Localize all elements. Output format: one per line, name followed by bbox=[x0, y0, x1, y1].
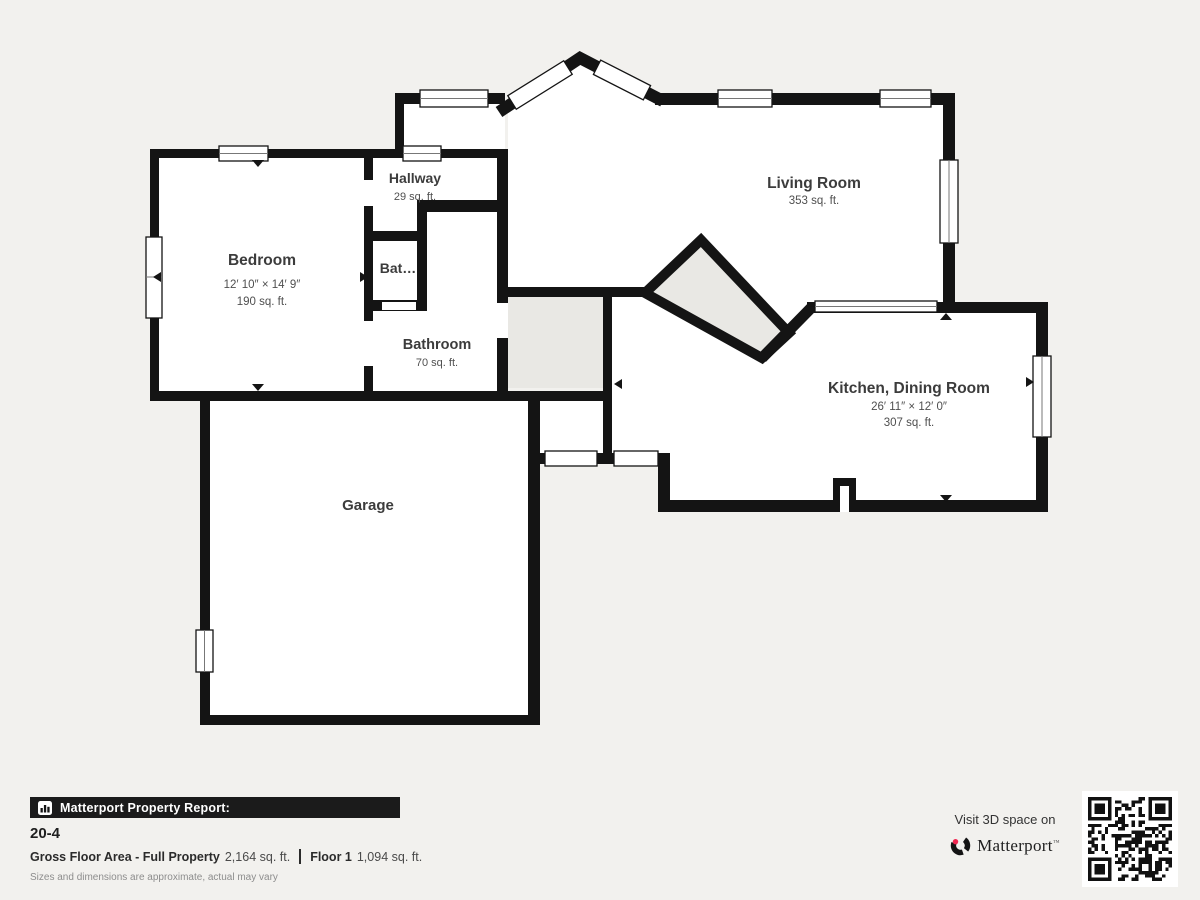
room-area-bedroom: 190 sq. ft. bbox=[237, 296, 288, 308]
qr-code bbox=[1088, 797, 1172, 881]
report-chart-icon bbox=[38, 801, 52, 815]
room-area-hallway: 29 sq. ft. bbox=[394, 191, 436, 203]
gross-area-label: Gross Floor Area - Full Property bbox=[30, 850, 220, 864]
matterport-wordmark: Matterport™ bbox=[977, 836, 1060, 856]
room-area-bathroom: 70 sq. ft. bbox=[416, 357, 458, 369]
disclaimer-text: Sizes and dimensions are approximate, ac… bbox=[30, 872, 278, 883]
area-divider bbox=[299, 849, 301, 864]
floor-plan: Bedroom 12′ 10″ × 14′ 9″ 190 sq. ft. Hal… bbox=[0, 0, 1200, 790]
report-title: Matterport Property Report: bbox=[60, 801, 230, 815]
floor1-label: Floor 1 bbox=[310, 850, 352, 864]
floor-area-line: Gross Floor Area - Full Property 2,164 s… bbox=[30, 849, 422, 864]
room-dims-kitchen: 26′ 11″ × 12′ 0″ bbox=[871, 401, 947, 413]
visit-3d-block: Visit 3D space on Matterport™ bbox=[930, 812, 1080, 856]
visit-3d-text: Visit 3D space on bbox=[930, 812, 1080, 827]
qr-code-panel bbox=[1082, 791, 1178, 887]
report-footer: Matterport Property Report: 20-4 Gross F… bbox=[0, 790, 1200, 900]
matterport-logo-icon bbox=[950, 835, 971, 856]
room-area-kitchen: 307 sq. ft. bbox=[884, 417, 935, 429]
room-label-bathroom: Bathroom bbox=[403, 337, 471, 353]
room-label-hallway: Hallway bbox=[389, 170, 441, 186]
room-dims-bedroom: 12′ 10″ × 14′ 9″ bbox=[224, 279, 301, 291]
room-area-living-room: 353 sq. ft. bbox=[789, 195, 840, 207]
room-label-bat: Bat… bbox=[380, 260, 417, 276]
gross-area-value: 2,164 sq. ft. bbox=[225, 850, 290, 864]
report-title-bar: Matterport Property Report: bbox=[30, 797, 400, 818]
room-label-garage: Garage bbox=[342, 497, 394, 514]
floor1-value: 1,094 sq. ft. bbox=[357, 850, 422, 864]
wall-notch bbox=[840, 486, 849, 512]
room-label-living-room: Living Room bbox=[767, 175, 861, 192]
room-label-kitchen: Kitchen, Dining Room bbox=[828, 380, 990, 397]
property-id: 20-4 bbox=[30, 825, 60, 842]
room-label-bedroom: Bedroom bbox=[228, 252, 296, 269]
